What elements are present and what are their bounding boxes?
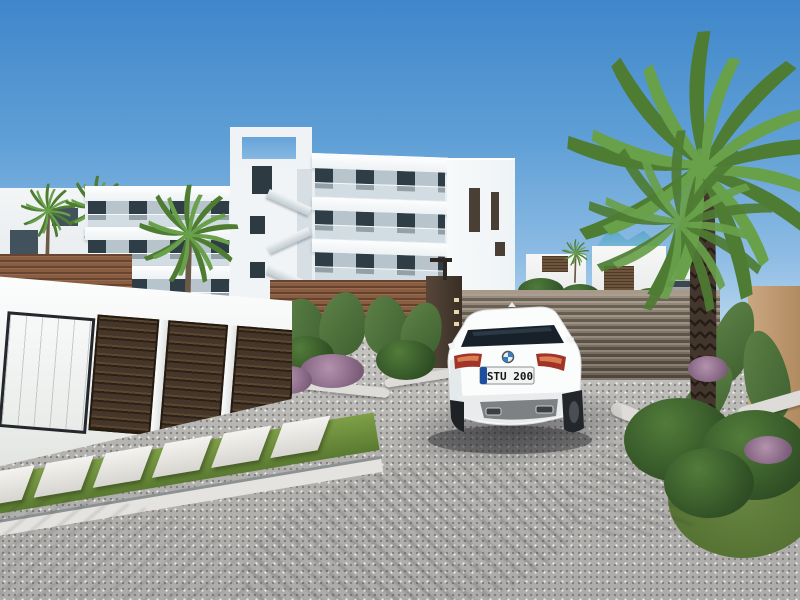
end-wall-window <box>469 188 480 232</box>
car-roof-antenna <box>508 302 516 307</box>
architectural-render-scene: STU 200 <box>0 0 800 600</box>
exhaust-tip-right <box>536 406 553 413</box>
exhaust-tip-left <box>486 408 501 415</box>
end-wall-window <box>491 192 499 230</box>
flower-cluster-right <box>744 436 792 464</box>
window-row <box>315 210 445 243</box>
tower-window <box>250 216 265 234</box>
mailbox-bank <box>0 311 95 434</box>
gate-lamp-arm <box>430 258 452 262</box>
license-plate: STU 200 <box>480 367 534 384</box>
garage-door <box>88 315 159 436</box>
car-wheel-left <box>450 400 464 432</box>
tower-window <box>250 262 265 278</box>
white-suv-car: STU 200 <box>424 300 602 458</box>
flower-cluster-right <box>688 356 728 382</box>
license-plate-text: STU 200 <box>487 370 533 383</box>
gate-lamp-post <box>443 258 447 280</box>
car-wheel-hub <box>569 401 579 423</box>
shrub-right <box>664 448 754 518</box>
stair-tower-roof-frame <box>230 127 312 169</box>
end-wall-window <box>495 242 505 256</box>
window-row <box>315 168 445 201</box>
